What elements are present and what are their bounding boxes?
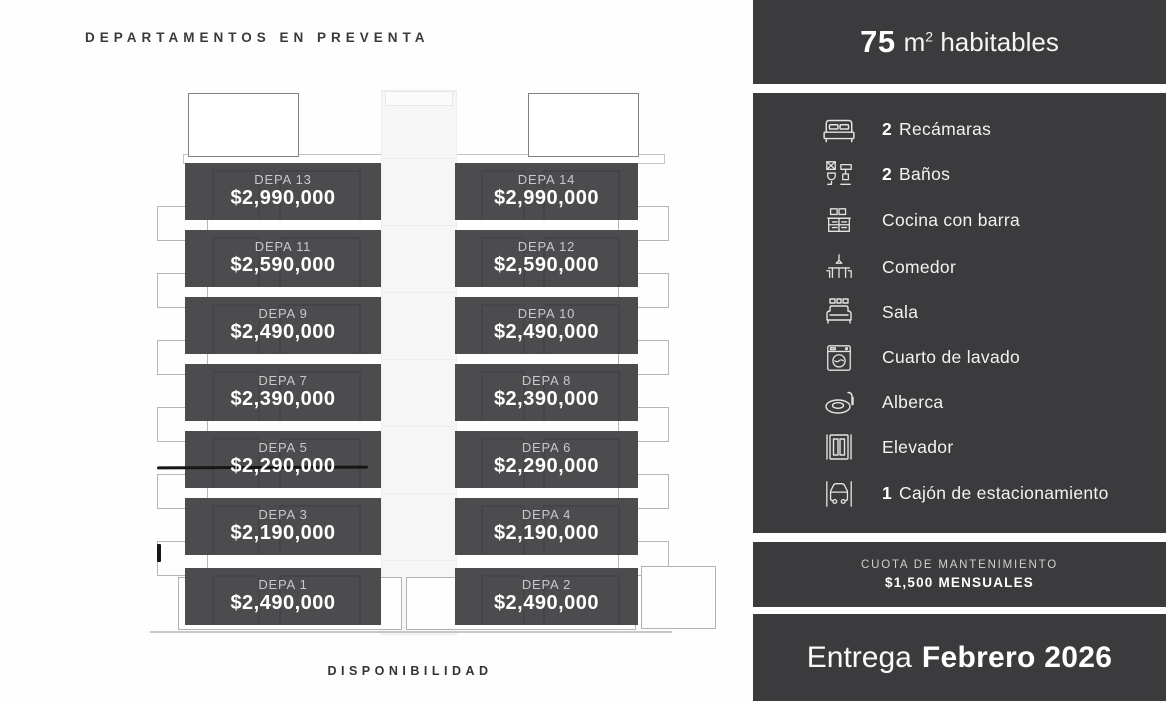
amenity-label: Cajón de estacionamiento xyxy=(899,483,1109,503)
unit-name: DEPA 11 xyxy=(255,240,311,255)
unit-price: $2,990,000 xyxy=(230,187,335,210)
amenity-label: Comedor xyxy=(882,257,956,277)
ground-line xyxy=(150,631,672,633)
unit-name: DEPA 1 xyxy=(258,578,307,593)
floor-row-6: DEPA 11 $2,590,000 DEPA 12 $2,590,000 xyxy=(0,230,753,287)
unit-price: $2,490,000 xyxy=(494,592,599,615)
amenity-banos: 2Baños xyxy=(753,159,1166,189)
unit-price: $2,590,000 xyxy=(494,254,599,277)
delivery-date-block: Entrega Febrero 2026 xyxy=(753,614,1166,701)
amenity-elevador: Elevador xyxy=(753,432,1166,462)
unit-depa-6: DEPA 6 $2,290,000 xyxy=(455,431,638,488)
divider xyxy=(753,607,1170,614)
divider xyxy=(753,84,1170,93)
unit-depa-10: DEPA 10 $2,490,000 xyxy=(455,297,638,354)
elevator-icon xyxy=(819,432,859,462)
unit-price: $2,390,000 xyxy=(494,388,599,411)
amenity-qty: 2 xyxy=(882,119,892,139)
unit-price: $2,190,000 xyxy=(230,522,335,545)
floor-row-7: DEPA 13 $2,990,000 DEPA 14 $2,990,000 xyxy=(0,163,753,220)
tick-mark-depa-3 xyxy=(157,544,161,562)
laundry-icon xyxy=(819,343,859,373)
unit-name: DEPA 7 xyxy=(258,374,307,389)
maintenance-fee-amount: $1,500 MENSUALES xyxy=(885,575,1034,590)
unit-price: $2,490,000 xyxy=(230,321,335,344)
divider xyxy=(753,533,1170,542)
unit-depa-7: DEPA 7 $2,390,000 xyxy=(185,364,381,421)
bathroom-icon xyxy=(819,159,859,189)
dining-icon xyxy=(819,252,859,282)
kitchen-icon xyxy=(819,206,859,236)
unit-price: $2,490,000 xyxy=(494,321,599,344)
unit-depa-3: DEPA 3 $2,190,000 xyxy=(185,498,381,555)
unit-name: DEPA 12 xyxy=(518,240,575,255)
maintenance-fee-label: CUOTA DE MANTENIMIENTO xyxy=(861,559,1058,571)
amenity-estacionamiento: 1Cajón de estacionamiento xyxy=(753,479,1166,509)
unit-price: $2,190,000 xyxy=(494,522,599,545)
unit-depa-5: DEPA 5 $2,290,000 xyxy=(185,431,381,488)
floor-row-1: DEPA 1 $2,490,000 DEPA 2 $2,490,000 xyxy=(0,568,753,625)
amenity-label: Alberca xyxy=(882,392,943,412)
parking-icon xyxy=(819,479,859,509)
rooftop-structure-right xyxy=(528,93,639,157)
floor-row-3: DEPA 5 $2,290,000 DEPA 6 $2,290,000 xyxy=(0,431,753,488)
area-header: 75 m2 habitables xyxy=(753,0,1166,84)
amenity-sala: Sala xyxy=(753,298,1166,326)
unit-price: $2,490,000 xyxy=(230,592,335,615)
elevator-shaft-cap xyxy=(385,91,453,106)
unit-depa-11: DEPA 11 $2,590,000 xyxy=(185,230,381,287)
amenity-label: Recámaras xyxy=(899,119,991,139)
unit-name: DEPA 8 xyxy=(522,374,571,389)
amenity-qty: 1 xyxy=(882,483,892,503)
unit-name: DEPA 5 xyxy=(258,441,307,456)
unit-name: DEPA 3 xyxy=(258,508,307,523)
sofa-icon xyxy=(819,298,859,326)
pool-icon xyxy=(819,389,859,416)
unit-name: DEPA 9 xyxy=(258,307,307,322)
delivery-date: Febrero 2026 xyxy=(922,641,1112,675)
amenity-label: Baños xyxy=(899,164,950,184)
unit-name: DEPA 13 xyxy=(254,173,311,188)
amenity-comedor: Comedor xyxy=(753,252,1166,282)
unit-depa-2: DEPA 2 $2,490,000 xyxy=(455,568,638,625)
amenity-recamaras: 2Recámaras xyxy=(753,115,1166,143)
unit-name: DEPA 6 xyxy=(522,441,571,456)
amenity-label: Cocina con barra xyxy=(882,210,1020,230)
unit-name: DEPA 14 xyxy=(518,173,575,188)
unit-depa-4: DEPA 4 $2,190,000 xyxy=(455,498,638,555)
area-value: 75 xyxy=(860,24,895,60)
floor-row-4: DEPA 7 $2,390,000 DEPA 8 $2,390,000 xyxy=(0,364,753,421)
unit-depa-8: DEPA 8 $2,390,000 xyxy=(455,364,638,421)
rooftop-structure-left xyxy=(188,93,299,157)
unit-price: $2,290,000 xyxy=(494,455,599,478)
unit-depa-12: DEPA 12 $2,590,000 xyxy=(455,230,638,287)
floor-row-5: DEPA 9 $2,490,000 DEPA 10 $2,490,000 xyxy=(0,297,753,354)
unit-depa-14: DEPA 14 $2,990,000 xyxy=(455,163,638,220)
amenity-label: Elevador xyxy=(882,437,953,457)
unit-depa-9: DEPA 9 $2,490,000 xyxy=(185,297,381,354)
unit-price: $2,390,000 xyxy=(230,388,335,411)
unit-price: $2,590,000 xyxy=(230,254,335,277)
availability-label: DISPONIBILIDAD xyxy=(155,664,665,678)
unit-name: DEPA 10 xyxy=(518,307,575,322)
unit-name: DEPA 2 xyxy=(522,578,571,593)
unit-name: DEPA 4 xyxy=(522,508,571,523)
unit-price: $2,990,000 xyxy=(494,187,599,210)
delivery-label: Entrega xyxy=(807,641,912,675)
amenity-label: Sala xyxy=(882,302,918,322)
unit-depa-13: DEPA 13 $2,990,000 xyxy=(185,163,381,220)
amenity-label: Cuarto de lavado xyxy=(882,347,1020,367)
unit-info-sidebar: 75 m2 habitables 2Recámaras 2Baños Cocin… xyxy=(753,0,1170,701)
unit-depa-1: DEPA 1 $2,490,000 xyxy=(185,568,381,625)
maintenance-fee-block: CUOTA DE MANTENIMIENTO $1,500 MENSUALES xyxy=(753,542,1166,607)
bed-icon xyxy=(819,115,859,143)
unit-price: $2,290,000 xyxy=(230,455,335,478)
preventa-panel: DEPARTAMENTOS EN PREVENTA DEPA 13 $2,990 xyxy=(0,0,753,701)
building-elevation-diagram: DEPA 13 $2,990,000 DEPA 14 $2,990,000 DE… xyxy=(0,0,753,701)
amenity-qty: 2 xyxy=(882,164,892,184)
area-unit-label: m2 habitables xyxy=(904,27,1059,58)
amenities-list: 2Recámaras 2Baños Cocina con barra Comed… xyxy=(753,93,1166,533)
amenity-cocina: Cocina con barra xyxy=(753,206,1166,236)
amenity-alberca: Alberca xyxy=(753,389,1166,416)
amenity-lavado: Cuarto de lavado xyxy=(753,343,1166,373)
floor-row-2: DEPA 3 $2,190,000 DEPA 4 $2,190,000 xyxy=(0,498,753,555)
